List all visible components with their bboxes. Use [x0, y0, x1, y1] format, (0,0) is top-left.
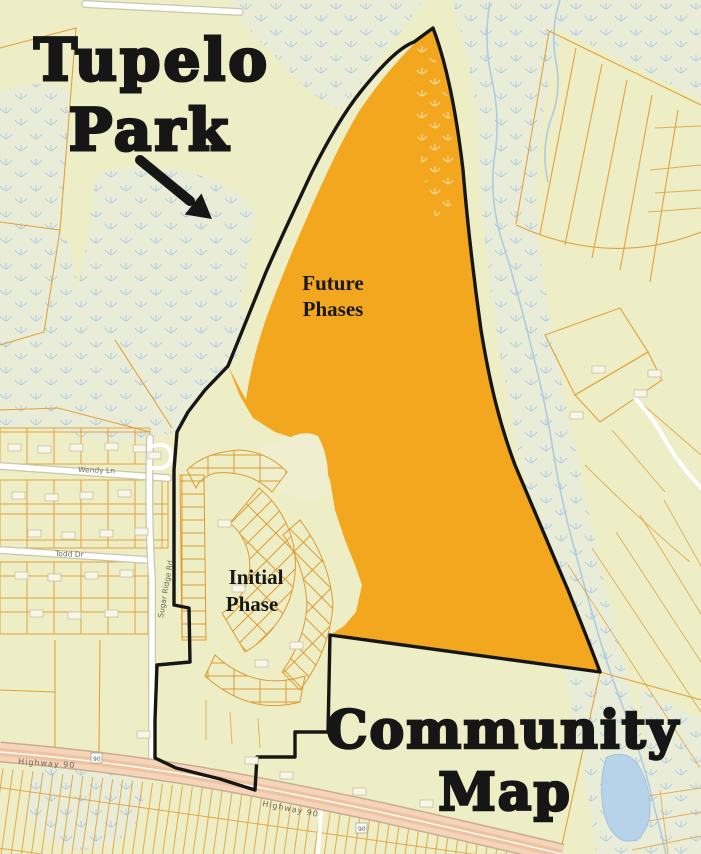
- building-footprint: [8, 444, 21, 451]
- map-title-line1: Tupelo: [34, 26, 270, 94]
- label-wendy-ln: Wendy Ln: [78, 465, 115, 475]
- building-footprint: [30, 610, 43, 617]
- building-footprint: [38, 446, 51, 453]
- building-footprint: [135, 528, 148, 535]
- community-map: Wendy Ln Todd Dr Sugar Ridge Rd Highway …: [0, 0, 701, 854]
- building-footprint: [48, 574, 61, 581]
- building-footprint: [648, 370, 661, 377]
- building-footprint: [100, 530, 113, 537]
- building-footprint: [12, 492, 25, 499]
- building-footprint: [255, 660, 268, 667]
- wetland-west-strip: [0, 84, 77, 432]
- initial-phase-label-line1: Initial: [229, 565, 284, 589]
- future-phases-label-line2: Phases: [303, 297, 364, 321]
- building-footprint: [148, 452, 161, 459]
- building-footprint: [105, 610, 118, 617]
- building-footprint: [28, 530, 41, 537]
- map-title-line2: Park: [69, 96, 231, 164]
- building-footprint: [120, 570, 133, 577]
- building-footprint: [570, 412, 583, 419]
- highway-shield-right: 90: [356, 823, 367, 833]
- building-footprint: [137, 731, 150, 738]
- building-footprint: [290, 642, 303, 649]
- building-footprint: [353, 788, 366, 795]
- building-footprint: [634, 390, 647, 397]
- building-footprint: [420, 800, 433, 807]
- building-footprint: [45, 494, 58, 501]
- building-footprint: [118, 490, 131, 497]
- building-footprint: [245, 757, 258, 764]
- building-footprint: [592, 366, 605, 373]
- building-footprint: [105, 443, 118, 450]
- initial-phase-label-line2: Phase: [226, 592, 279, 616]
- building-footprint: [133, 445, 146, 452]
- community-map-label-line2: Map: [438, 762, 572, 823]
- future-phases-label-line1: Future: [302, 271, 363, 295]
- building-footprint: [280, 772, 293, 779]
- community-map-label-line1: Community: [326, 700, 680, 761]
- building-footprint: [15, 572, 28, 579]
- svg-text:90: 90: [358, 826, 366, 833]
- label-todd-dr: Todd Dr: [54, 549, 85, 559]
- building-footprint: [62, 532, 75, 539]
- map-canvas: Wendy Ln Todd Dr Sugar Ridge Rd Highway …: [0, 0, 701, 854]
- building-footprint: [80, 492, 93, 499]
- road-sugar-ridge: [149, 438, 152, 760]
- building-footprint: [85, 572, 98, 579]
- highway-shield-left: 90: [91, 753, 102, 763]
- building-footprint: [70, 444, 83, 451]
- building-footprint: [218, 520, 231, 527]
- svg-text:90: 90: [93, 756, 101, 763]
- building-footprint: [68, 612, 81, 619]
